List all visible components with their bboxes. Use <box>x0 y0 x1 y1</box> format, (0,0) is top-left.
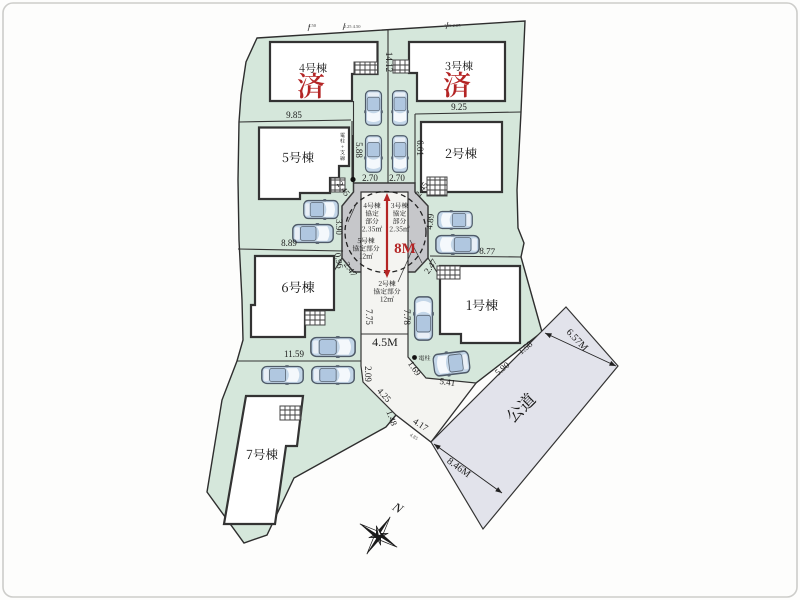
svg-text:9.85: 9.85 <box>286 110 302 120</box>
svg-text:3.90: 3.90 <box>334 219 344 235</box>
svg-text:2.25 4.50: 2.25 4.50 <box>344 24 362 29</box>
svg-text:2.70: 2.70 <box>389 173 405 183</box>
svg-text:4.50 2.25: 4.50 2.25 <box>444 23 462 28</box>
svg-text:9.25: 9.25 <box>451 102 467 112</box>
svg-text:11.59: 11.59 <box>284 349 304 359</box>
svg-text:14.12: 14.12 <box>384 52 394 72</box>
svg-text:8.77: 8.77 <box>479 245 496 256</box>
svg-text:4.89: 4.89 <box>424 213 436 230</box>
svg-text:8.89: 8.89 <box>281 238 297 248</box>
svg-text:4.5M: 4.5M <box>372 335 398 349</box>
svg-text:6.01: 6.01 <box>415 140 425 156</box>
svg-text:2.09: 2.09 <box>363 366 373 382</box>
svg-text:4.50: 4.50 <box>308 23 317 28</box>
svg-text:8M: 8M <box>394 241 416 257</box>
svg-text:7.75: 7.75 <box>364 309 374 325</box>
svg-text:7.78: 7.78 <box>402 309 412 325</box>
svg-text:2.70: 2.70 <box>362 173 378 183</box>
svg-text:5.88: 5.88 <box>354 142 364 158</box>
